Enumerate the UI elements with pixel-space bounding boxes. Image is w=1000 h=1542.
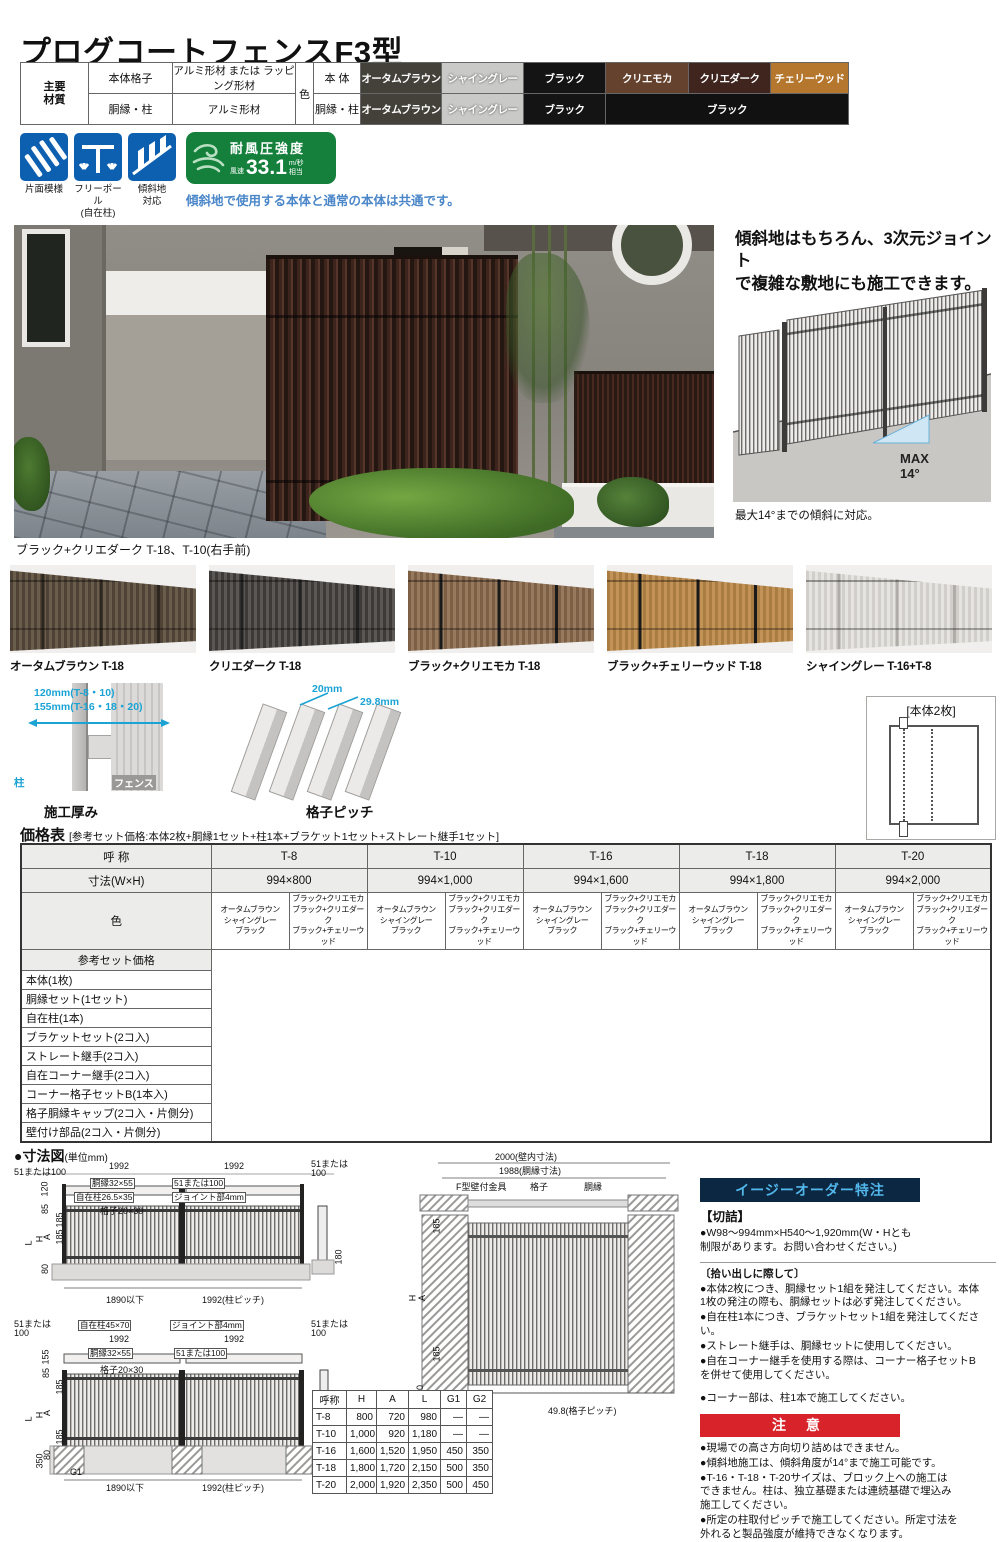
feature-caption: 傾斜地 対応: [124, 184, 180, 208]
color-chip: ブラック: [524, 63, 606, 94]
slope-common-note: 傾斜地で使用する本体と通常の本体は共通です。: [186, 190, 460, 209]
variation-label: ブラック+チェリーウッド T-18: [607, 658, 793, 674]
panel-outline: [889, 725, 979, 825]
color-chip: クリエダーク: [689, 63, 771, 94]
dimension-label: 100: [311, 1169, 326, 1179]
pickup-item: ●自在コーナー継手を使用する際は、コーナー格子セットB を併せて使用してください…: [700, 1355, 996, 1383]
single-side-pattern-icon: [20, 133, 68, 181]
dim-table-row: T-202,0001,920 2,350500450: [313, 1477, 493, 1494]
variation-image: [607, 565, 793, 653]
dimension-label: 100: [14, 1329, 29, 1339]
variation-label: シャイングレー T-16+T-8: [806, 658, 992, 674]
color-chip: チェリーウッド: [771, 63, 849, 94]
dim-table-header: G1: [441, 1391, 467, 1409]
dimension-label: 85: [41, 1204, 51, 1214]
panel-fold-line: [903, 729, 905, 821]
divider: [700, 1262, 996, 1263]
dimension-label: 1992: [224, 1335, 244, 1345]
left-window: [22, 229, 70, 347]
fence-render: [806, 569, 992, 651]
color-group-b: ブラック+クリエモカ ブラック+クリエダーク ブラック+チェリーウッド: [601, 893, 679, 950]
color-group-a: オータムブラウン シャイングレー ブラック: [835, 893, 913, 950]
dimension-label: 155: [42, 1349, 52, 1364]
variation: シャイングレー T-16+T-8: [806, 565, 992, 674]
dimension-diagram-free-pole: 51または1001992199251または100胴縁32×5551または100自…: [14, 1160, 349, 1315]
dimension-label: 80: [43, 1450, 53, 1460]
color-chip: シャイングレー: [442, 94, 524, 125]
wind-speed-unit: m/秒: [289, 160, 304, 168]
slope-caption: 最大14°までの傾斜に対応。: [735, 507, 879, 523]
color-group-a: オータムブラウン シャイングレー ブラック: [523, 893, 601, 950]
color-row-label: 本 体: [314, 63, 361, 94]
dimension-label: 185: [433, 1346, 443, 1361]
fence-render: [209, 569, 395, 651]
dimension-label: 185: [56, 1429, 66, 1444]
dimension-diagram-embedded-post: 51または100自在柱45×70ジョイント部4mm1992199251または10…: [14, 1320, 349, 1500]
diagram-b-art: [14, 1320, 349, 1500]
wind-badge-title: 耐風圧強度: [230, 138, 305, 157]
price-item-label: 本体(1枚): [21, 970, 211, 989]
variation-label: クリエダーク T-18: [209, 658, 395, 674]
dim-table-header: H: [347, 1391, 377, 1409]
feature-caption: 片面模様: [16, 184, 72, 196]
photo-caption: ブラック+クリエダーク T-18、T-10(右手前): [16, 541, 250, 558]
corner-note: ●コーナー部は、柱1本で施工してください。: [700, 1392, 996, 1406]
variation-image: [10, 565, 196, 653]
size-name: T-8: [211, 844, 367, 869]
dimension-label: ジョイント部4mm: [170, 1320, 244, 1331]
right-ground: [554, 527, 714, 538]
materials-part-value: アルミ形材: [173, 94, 296, 125]
size-value: 994×1,600: [523, 869, 679, 893]
color-group-a: オータムブラウン シャイングレー ブラック: [367, 893, 445, 950]
dimension-label: 1890以下: [106, 1296, 144, 1306]
shrub: [14, 437, 50, 511]
size-name: T-10: [367, 844, 523, 869]
pickup-title: 〔拾い出しに際して〕: [700, 1268, 996, 1282]
dimension-label: 80: [41, 1264, 51, 1274]
materials-header: 主要 材質: [21, 63, 89, 125]
variation: クリエダーク T-18: [209, 565, 395, 674]
main-photo: [14, 225, 714, 538]
dimension-label: L: [25, 1240, 35, 1245]
wind-resistance-badge: 耐風圧強度 風速 33.1 m/秒 相当: [186, 132, 336, 184]
variation: オータムブラウン T-18: [10, 565, 196, 674]
wind-icon: [192, 138, 226, 179]
dimension-label: 185: [433, 1218, 443, 1233]
dimension-label: F型壁付金具: [456, 1183, 507, 1193]
caution-list: ●現場での高さ方向切り詰めはできません。●傾斜地施工は、傾斜角度が14°まで施工…: [700, 1442, 996, 1542]
color-group-b: ブラック+クリエモカ ブラック+クリエダーク ブラック+チェリーウッド: [757, 893, 835, 950]
size-value: 994×1,800: [679, 869, 835, 893]
max-angle-label: MAX 14°: [900, 452, 929, 482]
price-item-label: ストレート継手(2コ入): [21, 1046, 211, 1065]
dimension-label: H: [35, 1236, 45, 1243]
dim-table-header: 呼称: [313, 1391, 347, 1409]
color-chip: シャイングレー: [442, 63, 524, 94]
size-header: 寸法(W×H): [21, 869, 211, 893]
dimension-label: 自在柱45×70: [78, 1320, 131, 1331]
price-item-label: 胴縁セット(1セット): [21, 989, 211, 1008]
size-value: 994×800: [211, 869, 367, 893]
size-name: T-20: [835, 844, 991, 869]
price-table-heading: 価格表[参考セット価格:本体2枚+胴縁1セット+柱1本+ブラケット1セット+スト…: [20, 824, 499, 845]
price-item-label: 格子胴縁キャップ(2コ入・片側分): [21, 1103, 211, 1122]
dim-table-row: T-101,000920 1,180――: [313, 1426, 493, 1443]
dimension-label: 85: [42, 1368, 52, 1378]
cut-body: ●W98〜994mm×H540〜1,920mm(W・Hとも 制限があります。お問…: [700, 1227, 996, 1255]
color-header: 色: [21, 893, 211, 950]
pickup-item: ●本体2枚につき、胴縁セット1組を発注してください。本体 1枚の発注の際も、胴縁…: [700, 1283, 996, 1311]
caution-item: ●T-16・T-18・T-20サイズは、ブロック上への施工は できません。柱は、…: [700, 1472, 996, 1514]
size-name: T-18: [679, 844, 835, 869]
dimension-label: 185: [56, 1379, 66, 1394]
fence-label: フェンス: [112, 775, 156, 790]
variation: ブラック+チェリーウッド T-18: [607, 565, 793, 674]
dimension-label: 胴縁32×55: [88, 1348, 133, 1359]
fence-render: [607, 569, 793, 651]
caution-item: ●所定の柱取付ピッチで施工してください。所定寸法を 外れると製品強度が維持できな…: [700, 1514, 996, 1542]
slope-support-icon: [128, 133, 176, 181]
color-chip: オータムブラウン: [361, 94, 442, 125]
dim-table-header: L: [409, 1391, 441, 1409]
post-label: 柱: [14, 775, 25, 790]
materials-part-value: アルミ形材 または ラッピング形材: [173, 63, 296, 94]
caution-item: ●傾斜地施工は、傾斜角度が14°まで施工可能です。: [700, 1457, 996, 1471]
dimension-label: 180: [335, 1249, 345, 1264]
slope-diagram: [733, 274, 991, 502]
dimension-label: ジョイント部4mm: [172, 1192, 246, 1203]
dimension-label: G1: [70, 1468, 82, 1478]
shrub: [309, 468, 574, 538]
pitch-caption: 格子ピッチ: [306, 801, 374, 821]
dimension-label: 1992(柱ピッチ): [202, 1296, 264, 1306]
dimension-label: 185: [56, 1212, 66, 1227]
price-title: 価格表: [20, 827, 65, 844]
dim-table-row: T-161,6001,520 1,950450350: [313, 1443, 493, 1460]
materials-table: 主要 材質 本体格子 アルミ形材 または ラッピング形材 色 本 体 オータムブ…: [20, 62, 849, 125]
post-stub: [899, 821, 908, 837]
dimension-label: 1988(胴縁寸法): [499, 1167, 561, 1177]
round-window: [612, 225, 692, 285]
price-blank-area: [211, 949, 991, 1142]
size-name: T-16: [523, 844, 679, 869]
dimension-label: 100: [311, 1329, 326, 1339]
color-chip: ブラック: [524, 94, 606, 125]
bamboo-leaves: [506, 253, 590, 403]
dim-table-header: G2: [467, 1391, 493, 1409]
dimension-label: 185: [56, 1229, 66, 1244]
price-item-label: ブラケットセット(2コ入): [21, 1027, 211, 1046]
pickup-item: ●自在柱1本につき、ブラケットセット1組を発注してください。: [700, 1311, 996, 1339]
color-group-b: ブラック+クリエモカ ブラック+クリエダーク ブラック+チェリーウッド: [913, 893, 991, 950]
price-subtitle: [参考セット価格:本体2枚+胴縁1セット+柱1本+ブラケット1セット+ストレート…: [69, 831, 499, 843]
dimension-label: 120: [41, 1181, 51, 1196]
dim-table-row: T-181,8001,720 2,150500350: [313, 1460, 493, 1477]
price-item-label: コーナー格子セットB(1本入): [21, 1084, 211, 1103]
dimension-arrow: [28, 717, 170, 729]
fence-render: [10, 569, 196, 651]
dimension-label: 格子20×30: [100, 1366, 143, 1376]
dim-table-row: T-8800720 980――: [313, 1409, 493, 1426]
easy-order-header: イージーオーダー特注: [700, 1178, 920, 1202]
dimension-label: 格子20×30: [100, 1207, 143, 1217]
dimension-label: H: [35, 1412, 45, 1419]
dimension-label: 51または100: [172, 1178, 225, 1189]
variation-image: [806, 565, 992, 653]
installation-thickness-diagram: 120mm(T-8・10) 155mm(T-16・18・20) 柱 フェンス 施…: [14, 683, 224, 823]
dimension-label: 51または100: [174, 1348, 227, 1359]
color-chip: クリエモカ: [606, 63, 689, 94]
caution-item: ●現場での高さ方向切り詰めはできません。: [700, 1442, 996, 1456]
lattice-pitch-diagram: 20mm 29.8mm 格子ピッチ: [228, 683, 438, 823]
dimension-label: 51または100: [14, 1168, 66, 1178]
variation-image: [408, 565, 594, 653]
two-panel-label: [本体2枚]: [867, 702, 995, 719]
materials-part-label: 本体格子: [89, 63, 173, 94]
price-item-label: 壁付け部品(2コ入・片側分): [21, 1122, 211, 1142]
dimension-label: 自在柱26.5×35: [74, 1192, 134, 1203]
color-group-a: オータムブラウン シャイングレー ブラック: [211, 893, 289, 950]
wind-speed-value: 33.1: [246, 157, 287, 178]
dimension-diagram-wall-mount: 2000(壁内寸法)1988(胴縁寸法)F型壁付金具格子胴縁185HA18580…: [400, 1153, 695, 1423]
dimension-label: 1992: [109, 1162, 129, 1172]
pitch-arrows: [298, 689, 368, 711]
diagram-c-art: [400, 1153, 695, 1423]
dim-table-header: A: [377, 1391, 409, 1409]
caution-header: 注 意: [700, 1414, 900, 1436]
dimension-label: 1992: [224, 1162, 244, 1172]
fence-render: [408, 569, 594, 651]
pickup-list: ●本体2枚につき、胴縁セット1組を発注してください。本体 1枚の発注の際も、胴縁…: [700, 1283, 996, 1383]
post-stub: [899, 717, 908, 729]
fence-rail: [266, 315, 518, 318]
dimension-label: 1992: [109, 1335, 129, 1345]
dimension-label: 胴縁32×55: [90, 1178, 135, 1189]
two-panel-note-box: [本体2枚]: [866, 696, 996, 840]
size-value: 994×1,000: [367, 869, 523, 893]
color-variations: オータムブラウン T-18 クリエダーク T-18 ブラック+クリエモカ T-1…: [10, 565, 992, 674]
variation: ブラック+クリエモカ T-18: [408, 565, 594, 674]
set-price-header: 参考セット価格: [21, 949, 211, 970]
feature-caption: フリーポール (自在柱): [70, 184, 126, 220]
dimension-label: 2000(壁内寸法): [495, 1153, 557, 1163]
dimension-label: 胴縁: [584, 1183, 602, 1193]
fence-right-panel: [574, 371, 714, 488]
price-item-label: 自在コーナー継手(2コ入): [21, 1065, 211, 1084]
color-column-header: 色: [296, 63, 314, 125]
thickness-caption: 施工厚み: [44, 801, 98, 821]
wind-speed-label: 風速: [230, 168, 244, 175]
color-chip: オータムブラウン: [361, 63, 442, 94]
color-chip: ブラック: [606, 94, 849, 125]
color-row-label: 胴縁・柱: [314, 94, 361, 125]
thickness-dim-2: 155mm(T-16・18・20): [34, 699, 143, 714]
dimension-label: A: [418, 1295, 428, 1301]
dimension-label: L: [25, 1416, 35, 1421]
bracket-render: [88, 735, 112, 759]
variation-label: オータムブラウン T-18: [10, 658, 196, 674]
pickup-item: ●ストレート継手は、胴縁セットに使用してください。: [700, 1340, 996, 1354]
cut-title: 【切詰】: [700, 1209, 996, 1226]
dimension-label: 1890以下: [106, 1484, 144, 1494]
color-group-a: オータムブラウン シャイングレー ブラック: [679, 893, 757, 950]
variation-label: ブラック+クリエモカ T-18: [408, 658, 594, 674]
panel-fold-line: [931, 729, 933, 821]
variation-image: [209, 565, 395, 653]
materials-part-label: 胴縁・柱: [89, 94, 173, 125]
easy-order-panel: イージーオーダー特注 【切詰】 ●W98〜994mm×H540〜1,920mm(…: [700, 1178, 996, 1542]
wind-speed-suffix: 相当: [289, 169, 304, 177]
name-header: 呼 称: [21, 844, 211, 869]
color-group-b: ブラック+クリエモカ ブラック+クリエダーク ブラック+チェリーウッド: [289, 893, 367, 950]
dimension-label: 1992(柱ピッチ): [202, 1484, 264, 1494]
color-group-b: ブラック+クリエモカ ブラック+クリエダーク ブラック+チェリーウッド: [445, 893, 523, 950]
price-item-label: 自在柱(1本): [21, 1008, 211, 1027]
thickness-dim-1: 120mm(T-8・10): [34, 685, 115, 700]
size-value: 994×2,000: [835, 869, 991, 893]
dimension-label: 格子: [530, 1183, 548, 1193]
dimension-table: 呼称HALG1G2 T-8800720 980―― T-101,000920 1…: [312, 1390, 493, 1494]
dimension-label: 49.8(格子ピッチ): [548, 1407, 617, 1417]
price-table: 呼 称 T-8T-10T-16T-18T-20 寸法(W×H) 994×8009…: [20, 843, 992, 1143]
free-pole-icon: [74, 133, 122, 181]
